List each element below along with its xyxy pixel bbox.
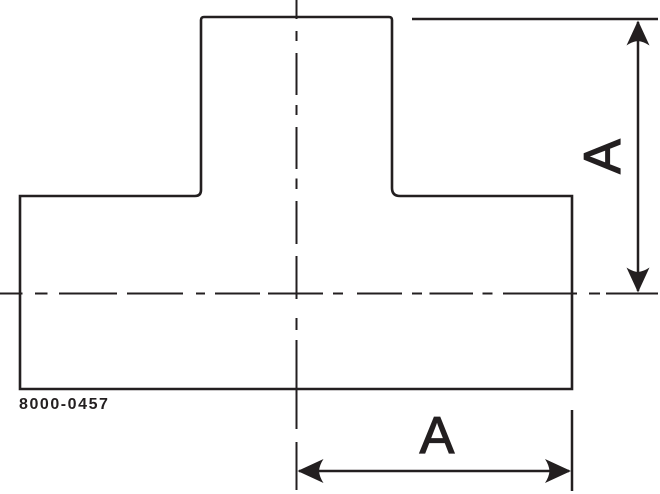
svg-text:A: A	[420, 407, 455, 465]
svg-text:8000-0457: 8000-0457	[19, 396, 109, 413]
svg-text:A: A	[574, 139, 632, 174]
